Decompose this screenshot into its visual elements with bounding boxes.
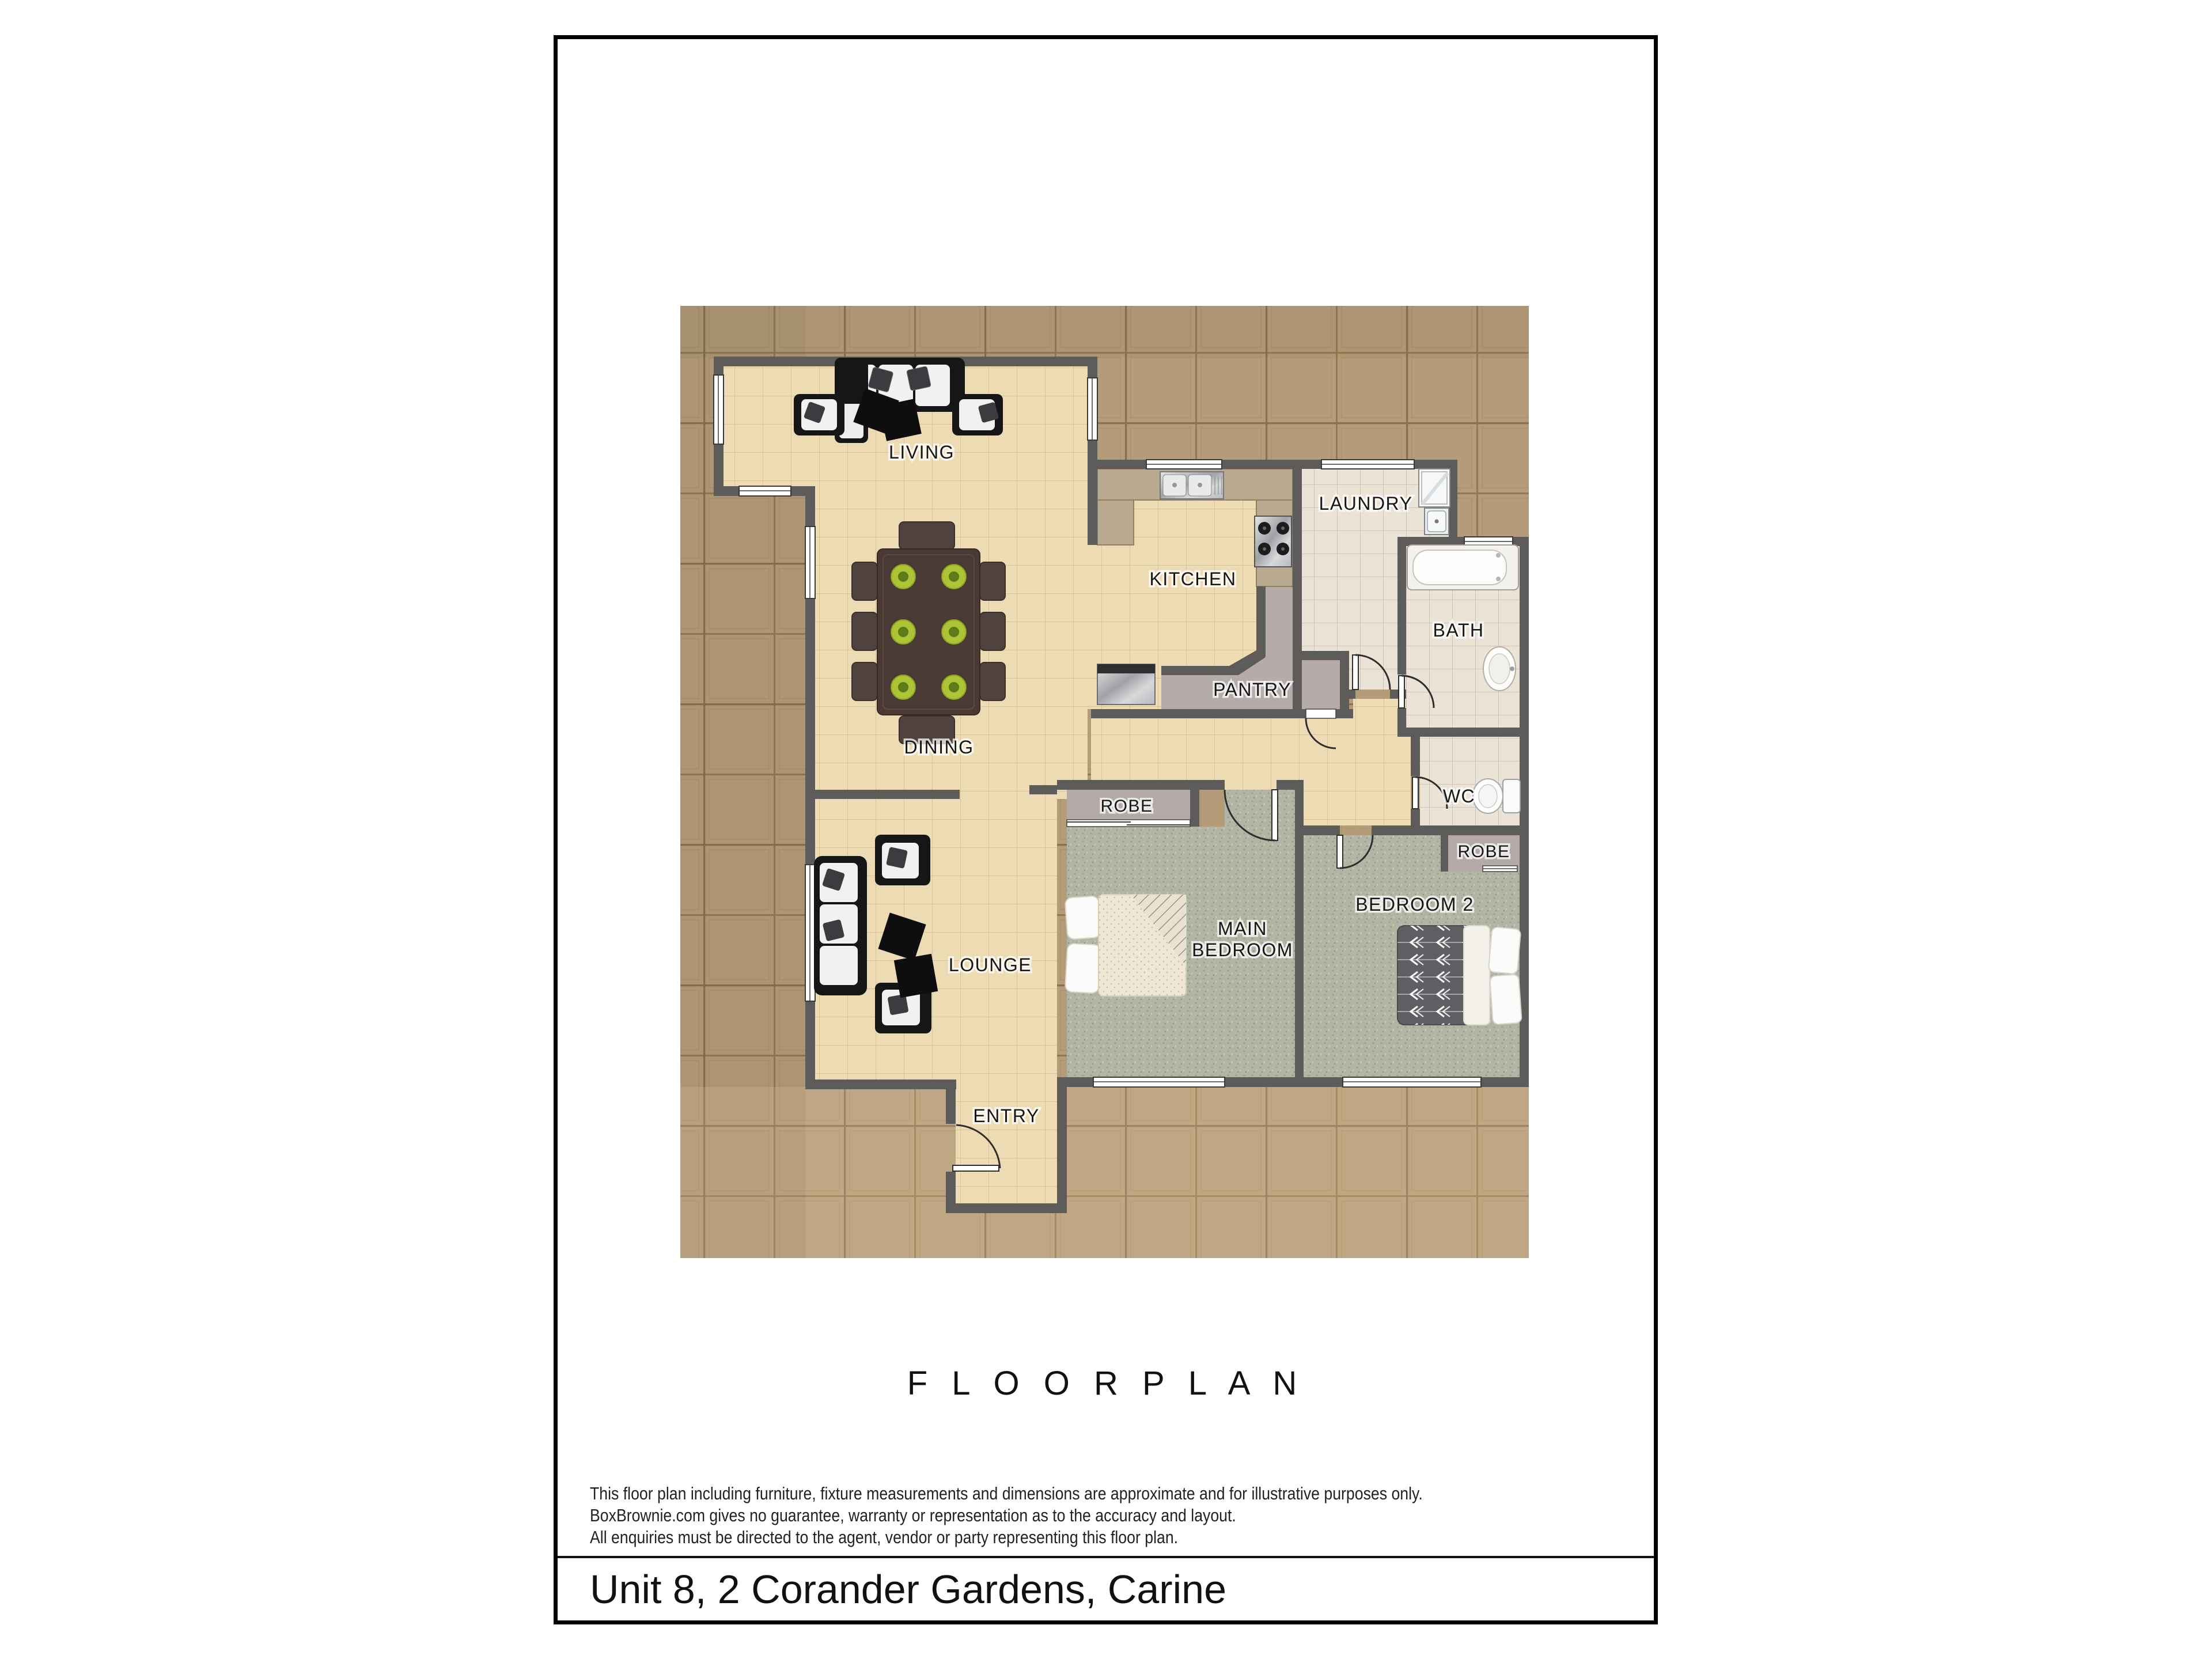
lounge-armchair-top [875, 835, 930, 885]
floor-plan-svg: LIVING KITCHEN LAUNDRY BATH PANTRY DININ… [680, 306, 1529, 1258]
main-bed [1065, 895, 1186, 996]
label-bath: BATH [1433, 620, 1484, 641]
disclaimer-line-3: All enquiries must be directed to the ag… [590, 1527, 1457, 1548]
address-bar: Unit 8, 2 Corander Gardens, Carine [558, 1556, 1654, 1620]
label-entry: ENTRY [973, 1105, 1039, 1126]
label-main-bedroom-1: MAIN [1218, 918, 1267, 939]
kitchen-sink [1160, 472, 1224, 499]
disclaimer-line-1: This floor plan including furniture, fix… [590, 1483, 1457, 1505]
disclaimer-line-2: BoxBrownie.com gives no guarantee, warra… [590, 1505, 1457, 1527]
bath-basin [1483, 647, 1516, 691]
bedroom2-bed [1397, 926, 1522, 1025]
kitchen-peninsula [1097, 664, 1155, 704]
label-main-bedroom-2: BEDROOM [1192, 940, 1293, 960]
hall-floor [1091, 718, 1411, 790]
label-pantry: PANTRY [1213, 679, 1291, 700]
address-text: Unit 8, 2 Corander Gardens, Carine [558, 1566, 1226, 1612]
label-bedroom2: BEDROOM 2 [1355, 894, 1474, 915]
entry-floor [956, 1080, 1057, 1203]
stove-cooktop [1255, 516, 1291, 567]
linen-closet [1302, 660, 1340, 709]
label-dining: DINING [904, 737, 974, 757]
label-robe-main: ROBE [1100, 797, 1153, 816]
living-armchair-right [952, 394, 1003, 435]
label-living: LIVING [889, 442, 955, 463]
label-lounge: LOUNGE [949, 955, 1032, 975]
label-kitchen: KITCHEN [1150, 569, 1237, 589]
label-wc: WC [1443, 786, 1475, 806]
toilet [1473, 779, 1520, 813]
disclaimer-text: This floor plan including furniture, fix… [590, 1483, 1457, 1548]
laundry-tub [1425, 508, 1449, 535]
floor-plan-drawing: LIVING KITCHEN LAUNDRY BATH PANTRY DININ… [680, 306, 1529, 1258]
label-laundry: LAUNDRY [1319, 493, 1413, 514]
label-robe-bedroom2: ROBE [1457, 842, 1510, 861]
page-title: F L O O R P L A N [558, 1364, 1654, 1403]
document-canvas: LIVING KITCHEN LAUNDRY BATH PANTRY DININ… [0, 0, 2212, 1659]
living-armchair-left [794, 394, 844, 435]
floor-plan-page: LIVING KITCHEN LAUNDRY BATH PANTRY DININ… [554, 35, 1658, 1624]
bathtub [1407, 545, 1518, 590]
washing-machine [1419, 469, 1450, 507]
